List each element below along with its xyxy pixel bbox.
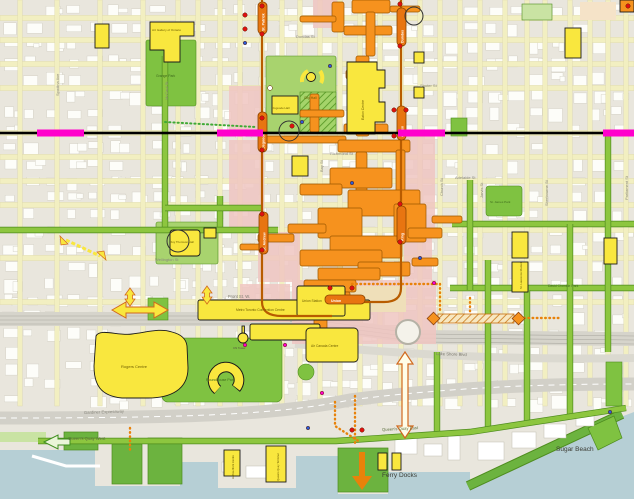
building-block [152, 397, 162, 407]
building-block [508, 25, 518, 37]
info-dot [350, 181, 354, 185]
white-dot [268, 86, 273, 91]
path-entrance-dot [260, 212, 264, 216]
building-block [121, 92, 131, 99]
path-entrance-dot [260, 32, 264, 36]
label-shuter-st: Shuter St [420, 83, 438, 88]
building-block [528, 262, 543, 271]
path-walkway [300, 184, 342, 195]
queen-street-line [0, 132, 634, 135]
building-block [560, 76, 565, 82]
map-canvas: St. PatrickOsgoodeSt. AndrewDundasQueenK… [0, 0, 634, 499]
ferry-pier [392, 453, 401, 470]
path-walkway [408, 228, 442, 238]
building-block [613, 277, 622, 286]
yellow-building [95, 24, 109, 48]
building-block [572, 313, 585, 325]
building-block [67, 92, 75, 102]
building-block [423, 25, 433, 36]
path-entrance-dot [243, 27, 247, 31]
building-block [34, 44, 39, 48]
path-entrance-dot [243, 13, 247, 17]
street-horizontal [0, 202, 634, 207]
label-sherbourne-st: Sherbourne St [544, 179, 549, 206]
label-cn-tower: CN Tower [233, 346, 246, 350]
ferry-pier [378, 453, 387, 470]
building-block [572, 363, 585, 373]
north-east-zone [580, 2, 616, 20]
label-roy-thomson-hall: Roy Thomson Hall [170, 240, 194, 244]
street-vertical [438, 0, 443, 406]
building-block [611, 107, 621, 115]
info-dot [306, 426, 310, 430]
building-block [5, 107, 14, 117]
building-block [530, 108, 542, 116]
building-block [592, 72, 604, 84]
building-block [531, 246, 542, 253]
magenta-dot [283, 343, 287, 347]
label-bay-st: Bay St [319, 159, 324, 172]
building-block [550, 245, 560, 254]
cn-tower-base [238, 333, 248, 343]
building-block [443, 92, 457, 106]
label-jarvis-st: Jarvis St [479, 182, 484, 198]
building-block [68, 327, 80, 339]
path-walkway [432, 216, 462, 223]
building-block [427, 364, 435, 376]
building-block [152, 107, 163, 114]
label-front-st-w-: Front St. W. [228, 294, 250, 299]
path-walkway [318, 268, 380, 280]
label-st-lawrence-market: St. Lawrence Market [519, 262, 523, 289]
path-entrance-dot [260, 248, 264, 252]
building-block [111, 210, 119, 219]
building-block [507, 399, 516, 407]
label-grange-park: Grange Park [156, 74, 176, 78]
building-block [592, 160, 607, 172]
street-vertical [458, 0, 463, 406]
building-block [66, 362, 81, 369]
toronto-path-waterfront-map: St. PatrickOsgoodeSt. AndrewDundasQueenK… [0, 0, 634, 499]
yellow-building [414, 52, 424, 63]
building-block [24, 245, 34, 257]
path-walkway [412, 258, 438, 266]
info-dot [328, 64, 332, 68]
queens-quay-terminal-building [266, 446, 286, 482]
building-block [595, 191, 606, 204]
label-mccaul-st: McCaul St [164, 81, 169, 100]
building-block [4, 23, 16, 35]
building-block [66, 25, 81, 32]
building-block [150, 276, 158, 286]
label-wellington-st: Wellington St [155, 257, 179, 262]
transit-priority-segment [217, 130, 263, 137]
label-union-station: Union Station [302, 299, 322, 303]
station-label: Union [331, 299, 341, 303]
building-block [112, 24, 128, 33]
city-hall-building [307, 73, 316, 82]
building-block [75, 91, 84, 97]
building-block [183, 144, 190, 153]
building-block [77, 194, 83, 199]
label-rogers-centre: Rogers Centre [121, 364, 148, 369]
path-entrance-dot [398, 2, 402, 6]
building-block [446, 42, 459, 54]
building-block [532, 90, 543, 100]
building-block [508, 91, 524, 101]
building-block [67, 210, 75, 219]
path-entrance-dot [260, 4, 264, 8]
building-block [4, 328, 20, 337]
building-block [45, 278, 53, 288]
building-block [87, 330, 96, 340]
building-block [548, 109, 562, 122]
street-vertical [478, 0, 483, 406]
building-block [446, 109, 459, 119]
label-roundhouse-park: Roundhouse Park [206, 378, 235, 382]
building-block [5, 195, 14, 202]
label-air-canada-centre: Air Canada Centre [311, 344, 338, 348]
building-block [23, 330, 32, 336]
path-entrance-dot [260, 116, 264, 120]
transit-priority-segment [603, 130, 634, 137]
label-dundas-st: Dundas St [296, 34, 316, 39]
building-block [107, 244, 120, 254]
building-block [285, 349, 293, 357]
label-eaton-centre: Eaton Centre [361, 100, 365, 120]
building-block [289, 24, 297, 30]
yellow-building [414, 87, 424, 98]
street-vertical [55, 0, 60, 406]
building-block [288, 144, 298, 154]
building-block [411, 400, 417, 406]
label-metro-toronto-convention-centre: Metro Toronto Convention Centre [236, 308, 285, 312]
building-block [559, 43, 564, 51]
yellow-building [204, 228, 216, 238]
yellow-building [565, 28, 581, 58]
building-block [573, 158, 582, 172]
building-block [529, 210, 538, 217]
path-entrance-dot [626, 4, 630, 8]
label-spadina-ave: Spadina Ave [55, 73, 60, 96]
info-dot [243, 41, 247, 45]
path-walkway [366, 12, 375, 56]
info-dot [608, 410, 612, 414]
building-block [341, 362, 357, 370]
building-block [27, 364, 39, 378]
building-block [486, 23, 496, 33]
yellow-building [604, 238, 617, 264]
building-block [69, 76, 81, 86]
path-entrance-dot [360, 428, 364, 432]
magenta-dot [320, 391, 324, 395]
building-block [424, 41, 433, 51]
building-block [76, 162, 86, 169]
building-block [180, 281, 185, 289]
building-block [68, 263, 85, 271]
station-label: Dundas [401, 30, 405, 43]
street-vertical [18, 0, 23, 406]
station-label: St. Patrick [262, 13, 266, 31]
building-block [118, 8, 128, 12]
path-entrance-dot [290, 124, 294, 128]
building-block [498, 265, 503, 270]
street-horizontal [0, 178, 634, 183]
small-park [522, 4, 552, 20]
building-block [150, 6, 165, 12]
building-block [119, 195, 126, 199]
path-entrance-dot [350, 286, 354, 290]
path-entrance-dot [392, 108, 396, 112]
label-adelaide-st: Adelaide St [455, 175, 476, 180]
path-entrance-dot [398, 202, 402, 206]
building-block [181, 162, 186, 172]
label-david-crombie-park: David Crombie Park [548, 284, 579, 288]
label-city-hall: City Hall [304, 96, 317, 100]
building-block [89, 192, 97, 199]
building-block [423, 108, 440, 115]
building-block [223, 247, 232, 256]
building-block [552, 396, 567, 410]
building-block [592, 262, 602, 272]
path-walkway [352, 0, 390, 13]
building-block [68, 111, 81, 119]
path-entrance-dot [398, 240, 402, 244]
path-walkway [288, 224, 326, 233]
label-osgoode-hall: Osgoode Hall [272, 106, 290, 110]
info-dot [418, 256, 422, 260]
building-block [510, 364, 519, 373]
transit-priority-segment [398, 130, 445, 137]
building-block [265, 162, 273, 172]
path-entrance-dot [398, 44, 402, 48]
building-block [490, 107, 499, 120]
path-walkway [266, 136, 346, 143]
building-block [89, 264, 97, 278]
label-parliament-st: Parliament St [624, 175, 629, 200]
label-ferry-docks: Ferry Docks [382, 472, 418, 479]
path-entrance-dot [260, 148, 264, 152]
label-queens-quay-terminal: Queens Quay Terminal [276, 453, 280, 481]
building-block [119, 143, 129, 153]
label-queen-s-quay-west: Queen's Quay West [68, 436, 106, 441]
building-block [67, 6, 80, 14]
building-block [6, 262, 18, 272]
path-entrance-dot [404, 108, 408, 112]
traffic-circle [396, 320, 420, 344]
building-block [110, 162, 123, 171]
building-block [464, 364, 476, 371]
building-block [24, 143, 39, 155]
building-block [530, 42, 538, 54]
st-lawrence-market-north [512, 232, 528, 258]
label-st-james-park: St. James Park [490, 200, 511, 204]
path-entrance-dot [392, 134, 396, 138]
transit-priority-segment [37, 130, 84, 137]
building-block [202, 94, 209, 101]
street-horizontal [0, 154, 634, 159]
building-block [277, 195, 294, 204]
building-block [288, 384, 295, 388]
label-church-st: Church St [439, 177, 444, 196]
path-entrance-dot [350, 428, 354, 432]
sherbourne-common [606, 362, 622, 406]
path-walkway [318, 208, 362, 238]
building-block [507, 161, 518, 174]
building-block [3, 144, 15, 150]
path-walkway [300, 16, 336, 22]
canada-life-building [292, 156, 308, 176]
building-block [67, 246, 77, 255]
magenta-dot [432, 281, 436, 285]
path-walkway [300, 110, 344, 117]
building-block [35, 159, 45, 165]
building-block [5, 364, 17, 375]
station-label: King [401, 233, 405, 241]
building-block [5, 159, 17, 169]
path-entrance-dot [328, 286, 332, 290]
building-block [111, 279, 122, 291]
building-block [78, 143, 87, 151]
building-block [530, 362, 544, 371]
ferry-arrow-shaft [359, 452, 365, 478]
osgoode-hall-building [272, 96, 298, 114]
building-block [25, 379, 34, 387]
building-block [574, 93, 587, 103]
label-sugar-beach: Sugar Beach [556, 446, 594, 453]
building-block [24, 110, 33, 119]
label-richmond-st: Richmond St [330, 151, 354, 156]
building-block [412, 26, 418, 31]
building-block [111, 141, 121, 153]
building-block [574, 211, 587, 223]
harbour-square-park [298, 364, 314, 380]
label-harbourfront-centre: Harbourfront Centre [231, 455, 235, 479]
building-block [486, 145, 498, 156]
building-block [23, 209, 33, 219]
building-block [27, 23, 42, 33]
label-art-gallery-of-ontario: Art Gallery of Ontario [152, 28, 181, 32]
info-dot [300, 120, 304, 124]
